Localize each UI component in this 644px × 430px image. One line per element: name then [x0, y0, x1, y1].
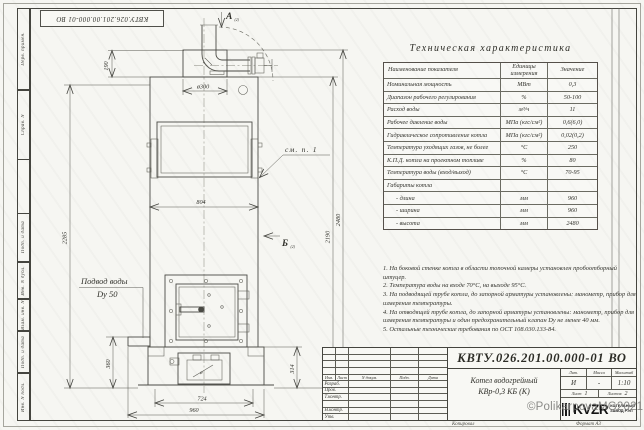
view-a-label: А [225, 12, 232, 22]
view-a-ref: (2) [235, 18, 240, 22]
dim-w960: 960 [189, 407, 199, 414]
top-nozzle-circle [239, 86, 248, 95]
mass-value: - [587, 377, 612, 389]
technical-notes: 1. На боковой стенке котла в области топ… [383, 265, 637, 335]
water-inlet: Подвод воды Dy 50 [79, 276, 150, 346]
row-prov: Пров. [323, 387, 447, 394]
view-b-ref: (2) [291, 245, 296, 249]
spec-row: Номинальная мощностьМВт0,3 [384, 78, 597, 91]
boiler-body [138, 77, 274, 385]
spec-row: Температура воды (вход/выход)°С70-95 [384, 166, 597, 179]
spec-table-title: Техническая характеристика [383, 43, 598, 54]
ash-door: ø [170, 353, 230, 384]
row-utv: Утв. [323, 413, 447, 420]
row-nkontr: Н.контр. [323, 407, 447, 414]
dimensions: ø300 190 804 2285 2190 2480 360 314 72 [62, 50, 349, 418]
row-razrab: Разраб. [323, 380, 447, 387]
dim-h2480: 2480 [335, 213, 342, 226]
ash-door-phi: ø [199, 371, 203, 376]
copyright-watermark: ©PolikarpovaMG2021 [527, 401, 643, 413]
meta-headers: Лит. Масса Масштаб [561, 369, 636, 377]
spec-row: Гидравлическое сопротивление котлаМПа (к… [384, 128, 597, 141]
copied-label: Копировал [452, 422, 474, 427]
water-inlet-label-1: Подвод воды [80, 276, 128, 286]
dim-h314: 314 [289, 364, 296, 374]
product-name-line2: КВр-0,3 КБ (К) [448, 387, 560, 398]
dim-h360: 360 [105, 358, 112, 369]
spec-row: - ширинамм960 [384, 204, 597, 217]
sheet-row: Лист1 Листов2 [561, 390, 636, 398]
dim-h2285: 2285 [62, 232, 69, 244]
spec-row: Габариты котла [384, 179, 597, 192]
product-name-line1: Котел водогрейный [448, 376, 560, 387]
meta-values: И - 1:10 [561, 377, 636, 390]
spec-header-value: Значение [548, 63, 597, 78]
spec-table: Наименование показателя Единицы измерени… [383, 62, 598, 230]
spec-header-row: Наименование показателя Единицы измерени… [384, 63, 597, 78]
view-b-label: Б [281, 239, 288, 249]
dim-h2190: 2190 [325, 230, 332, 243]
spec-header-units: Единицы измерения [501, 63, 548, 78]
view-a-marker: А (2) [222, 12, 240, 27]
row-tkontr: Т.контр. [323, 393, 447, 400]
callout-text: см. п. 1 [285, 145, 318, 154]
furnace-door [165, 275, 249, 347]
spec-row: Диапазон рабочего регулирования%50-100 [384, 91, 597, 104]
spec-row: - высотамм2480 [384, 217, 597, 230]
door-handle-knob [198, 307, 204, 313]
signature-grid-header: Изм. Лист N докум. Подп. Дата [323, 374, 447, 381]
spec-row: Температура уходящих газов, не более°С25… [384, 141, 597, 154]
scale-value: 1:10 [612, 377, 636, 389]
spec-row: Рабочее давление водыМПа (кгс/см²)0,6(6,… [384, 116, 597, 129]
spec-row: Расход водым³/ч11 [384, 103, 597, 116]
spec-header-name: Наименование показателя [384, 63, 501, 78]
note-1: 1. На боковой стенке котла в области топ… [383, 265, 637, 282]
format-label: Формат А3 [576, 422, 601, 427]
note-5: 5. Остальные технические требования по О… [383, 326, 637, 335]
upper-window [147, 122, 262, 178]
water-inlet-label-2: Dy 50 [96, 289, 118, 299]
signature-grid: Изм. Лист N докум. Подп. Дата Разраб. Пр… [323, 348, 448, 420]
note-4: 4. На отводящей трубе котла, до запорной… [383, 309, 637, 326]
dim-w724: 724 [197, 396, 206, 403]
dim-h190: 190 [103, 60, 110, 70]
callout-see-note-1: см. п. 1 [260, 145, 331, 178]
dim-w804: 804 [196, 199, 205, 206]
spec-row: К.П.Д. котла на проектном топливе%80 [384, 154, 597, 167]
lit-value: И [561, 377, 587, 389]
note-3: 3. На подводящей трубе котла, до запорно… [383, 291, 637, 308]
view-b-marker: Б (2) [264, 236, 296, 249]
chimney-assembly [183, 25, 250, 77]
note-2: 2. Температура воды на входе 70°С, на вы… [383, 282, 637, 291]
dim-d300: ø300 [196, 84, 210, 91]
spec-row: - длинамм960 [384, 191, 597, 204]
valve [248, 53, 272, 74]
doc-number: КВТУ.026.201.00.000-01 ВО [448, 348, 636, 369]
